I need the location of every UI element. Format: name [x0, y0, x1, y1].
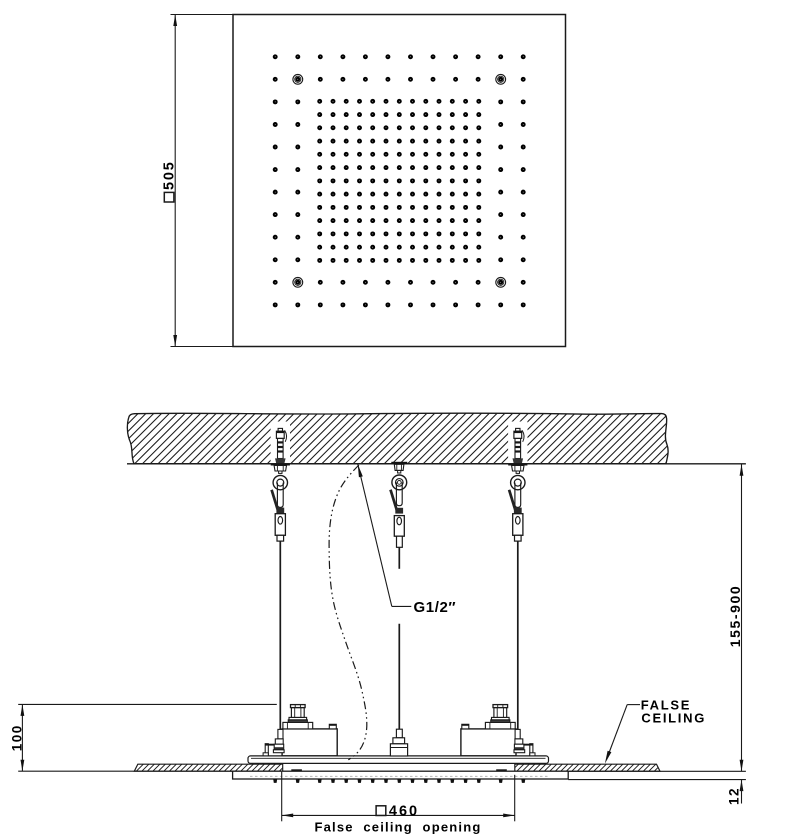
svg-text:100: 100 [10, 724, 25, 751]
svg-text:460: 460 [389, 804, 419, 820]
svg-text:12: 12 [727, 787, 742, 805]
svg-text:G1/2″: G1/2″ [414, 599, 457, 616]
svg-text:505: 505 [162, 160, 178, 190]
svg-text:False ceiling opening: False ceiling opening [314, 820, 481, 835]
svg-text:CEILING: CEILING [641, 711, 706, 726]
svg-text:155-900: 155-900 [727, 585, 743, 648]
